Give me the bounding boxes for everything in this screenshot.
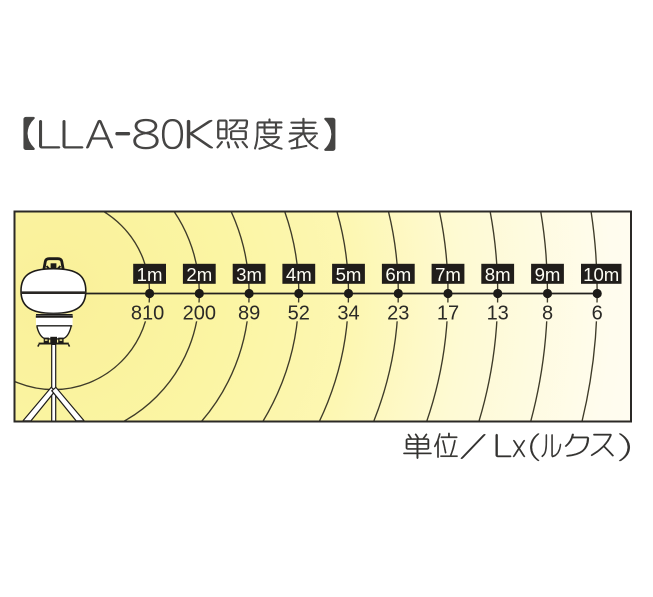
- svg-text:5m: 5m: [336, 264, 362, 285]
- svg-text:23: 23: [387, 302, 409, 324]
- svg-text:1m: 1m: [137, 264, 163, 285]
- svg-text:6: 6: [592, 302, 603, 324]
- svg-text:810: 810: [131, 302, 164, 324]
- svg-text:8m: 8m: [485, 264, 511, 285]
- svg-text:7m: 7m: [435, 264, 461, 285]
- svg-text:10m: 10m: [583, 264, 619, 285]
- svg-text:52: 52: [288, 302, 310, 324]
- svg-text:13: 13: [487, 302, 509, 324]
- svg-text:8: 8: [542, 302, 553, 324]
- svg-text:200: 200: [183, 302, 216, 324]
- svg-text:2m: 2m: [186, 264, 212, 285]
- svg-text:6m: 6m: [385, 264, 411, 285]
- svg-text:3m: 3m: [236, 264, 262, 285]
- svg-text:34: 34: [337, 302, 359, 324]
- svg-text:89: 89: [238, 302, 260, 324]
- svg-text:4m: 4m: [286, 264, 312, 285]
- svg-text:9m: 9m: [535, 264, 561, 285]
- svg-text:17: 17: [437, 302, 459, 324]
